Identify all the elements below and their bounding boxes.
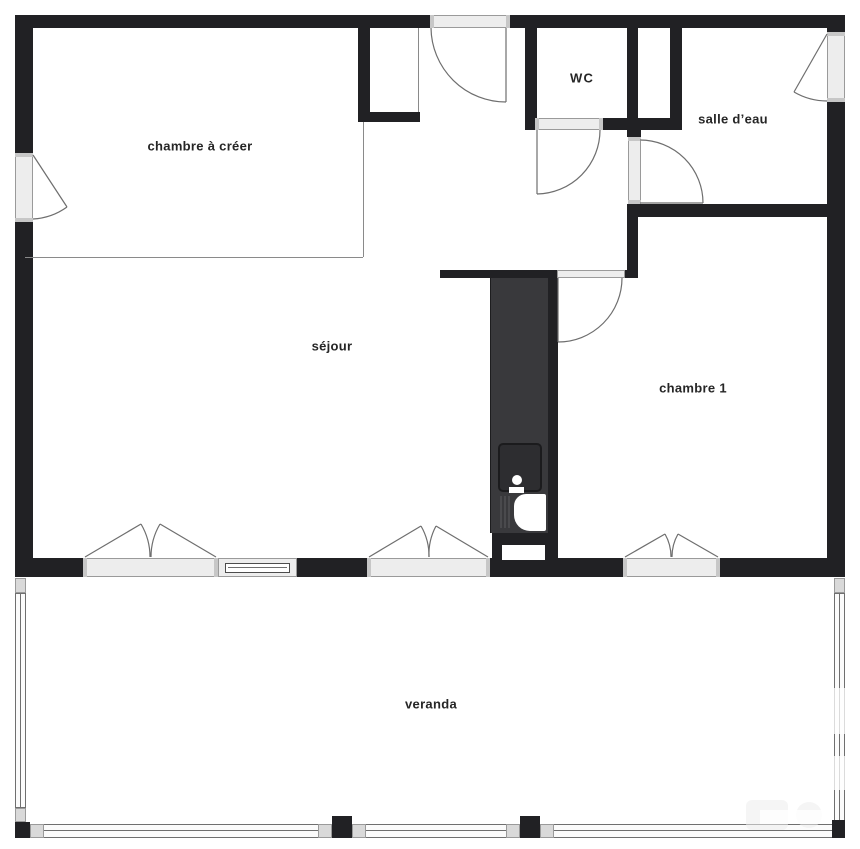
french-door-1-right-leaf [160, 524, 216, 557]
french-door-3-right-leaf [678, 534, 718, 557]
chambre1-door-swing [558, 278, 622, 342]
room-label-veranda: veranda [405, 697, 457, 712]
chambre-a-creer-door-swing [33, 207, 67, 219]
door-swings-layer [0, 0, 860, 849]
room-label-wc: WC [570, 71, 594, 86]
french-door-3-left-leaf [625, 534, 665, 557]
french-door-2-left-swing [421, 526, 429, 557]
wc-door-swing [537, 130, 600, 194]
french-door-1-left-leaf [85, 524, 141, 557]
room-label-salle-deau: salle d’eau [698, 112, 768, 127]
french-door-1-right-swing [151, 524, 160, 557]
salle-deau-exterior-door-leaf [794, 34, 827, 92]
chambre-a-creer-door-leaf [33, 155, 67, 207]
french-door-2-right-leaf [436, 526, 488, 557]
entry-door-swing [431, 28, 506, 102]
french-door-3-right-swing [672, 534, 678, 557]
french-door-3-left-swing [665, 534, 671, 557]
room-label-sejour: séjour [312, 339, 353, 354]
french-door-1-left-swing [141, 524, 150, 557]
salle-deau-door-swing [640, 140, 703, 203]
floor-plan: chambre à créer WC salle d’eau séjour ch… [0, 0, 860, 849]
french-door-2-right-swing [429, 526, 436, 557]
room-label-chambre-a-creer: chambre à créer [148, 139, 253, 154]
salle-deau-exterior-door-swing [794, 92, 827, 101]
french-door-2-left-leaf [369, 526, 421, 557]
room-label-chambre-1: chambre 1 [659, 381, 727, 396]
